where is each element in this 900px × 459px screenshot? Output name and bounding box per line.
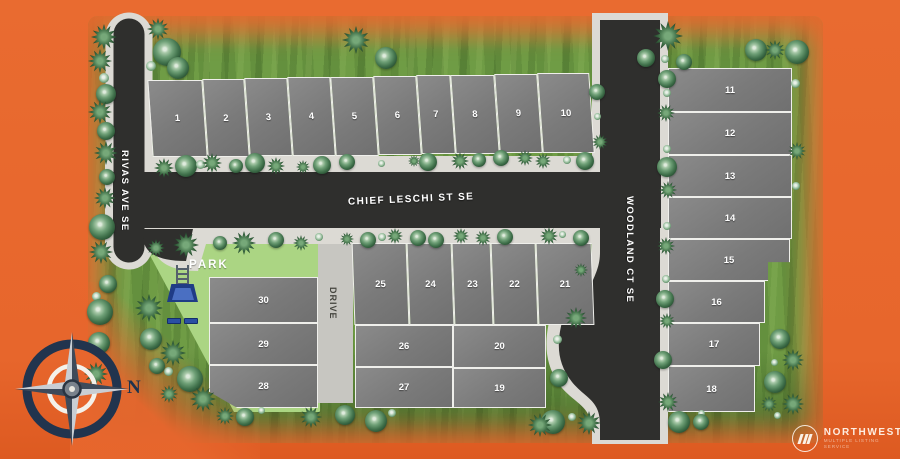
conifer-tree-icon xyxy=(657,104,675,122)
shrub-icon xyxy=(791,79,800,88)
shrub-icon xyxy=(663,222,671,230)
shrub-icon xyxy=(568,413,576,421)
logo-name: NORTHWEST xyxy=(824,427,900,438)
shrub-icon xyxy=(663,89,671,97)
shrub-icon xyxy=(378,160,385,167)
conifer-tree-icon xyxy=(577,411,601,435)
round-tree-icon xyxy=(658,70,676,88)
round-tree-icon xyxy=(676,54,692,70)
conifer-tree-icon xyxy=(658,392,678,412)
round-tree-icon xyxy=(497,229,513,245)
round-tree-icon xyxy=(654,351,672,369)
conifer-tree-icon xyxy=(342,26,370,54)
round-tree-icon xyxy=(656,290,674,308)
shrub-icon xyxy=(378,233,386,241)
nwmls-watermark: NORTHWEST MULTIPLE LISTING SERVICE xyxy=(792,425,900,452)
conifer-tree-icon xyxy=(300,406,322,428)
round-tree-icon xyxy=(472,153,486,167)
conifer-tree-icon xyxy=(592,134,608,150)
conifer-tree-icon xyxy=(91,24,117,50)
conifer-tree-icon xyxy=(154,158,174,178)
conifer-tree-icon xyxy=(147,239,165,257)
round-tree-icon xyxy=(89,214,115,240)
round-tree-icon xyxy=(693,414,709,430)
round-tree-icon xyxy=(96,84,116,104)
conifer-tree-icon xyxy=(232,231,256,255)
shrub-icon xyxy=(196,160,205,169)
compass-north-label: N xyxy=(127,377,141,399)
round-tree-icon xyxy=(229,159,243,173)
shrub-icon xyxy=(792,182,800,190)
round-tree-icon xyxy=(339,154,355,170)
conifer-tree-icon xyxy=(135,294,163,322)
round-tree-icon xyxy=(493,150,509,166)
conifer-tree-icon xyxy=(453,228,469,244)
shrub-icon xyxy=(315,233,323,241)
round-tree-icon xyxy=(589,84,605,100)
site-plan-map: 1234567891011121314151617181920212223242… xyxy=(0,0,900,459)
conifer-tree-icon xyxy=(173,232,199,258)
round-tree-icon xyxy=(175,155,197,177)
conifer-tree-icon xyxy=(451,152,469,170)
round-tree-icon xyxy=(785,40,809,64)
round-tree-icon xyxy=(637,49,655,67)
round-tree-icon xyxy=(375,47,397,69)
round-tree-icon xyxy=(360,232,376,248)
round-tree-icon xyxy=(770,329,790,349)
round-tree-icon xyxy=(268,232,284,248)
round-tree-icon xyxy=(140,328,162,350)
round-tree-icon xyxy=(428,232,444,248)
conifer-tree-icon xyxy=(340,232,354,246)
shrub-icon xyxy=(663,145,671,153)
round-tree-icon xyxy=(764,371,786,393)
conifer-tree-icon xyxy=(387,228,403,244)
shrub-icon xyxy=(662,275,670,283)
conifer-tree-icon xyxy=(782,393,804,415)
round-tree-icon xyxy=(99,275,117,293)
round-tree-icon xyxy=(99,169,115,185)
conifer-tree-icon xyxy=(657,237,675,255)
conifer-tree-icon xyxy=(659,181,677,199)
shrub-icon xyxy=(553,335,562,344)
shrub-icon xyxy=(774,412,781,419)
round-tree-icon xyxy=(245,153,265,173)
conifer-tree-icon xyxy=(540,227,558,245)
round-tree-icon xyxy=(213,236,227,250)
conifer-tree-icon xyxy=(202,153,222,173)
shrub-icon xyxy=(388,409,396,417)
shrub-icon xyxy=(771,359,778,366)
round-tree-icon xyxy=(167,57,189,79)
conifer-tree-icon xyxy=(788,142,806,160)
conifer-tree-icon xyxy=(782,349,804,371)
conifer-tree-icon xyxy=(267,157,285,175)
round-tree-icon xyxy=(177,366,203,392)
conifer-tree-icon xyxy=(574,263,588,277)
shrub-icon xyxy=(99,73,109,83)
conifer-tree-icon xyxy=(94,141,118,165)
compass-rose-icon xyxy=(14,331,130,447)
round-tree-icon xyxy=(149,358,165,374)
conifer-tree-icon xyxy=(94,187,116,209)
conifer-tree-icon xyxy=(88,49,112,73)
round-tree-icon xyxy=(657,157,677,177)
nwmls-logo-icon xyxy=(792,425,818,452)
conifer-tree-icon xyxy=(293,235,309,251)
conifer-tree-icon xyxy=(565,307,587,329)
logo-tagline: MULTIPLE LISTING SERVICE xyxy=(824,438,900,450)
round-tree-icon xyxy=(410,230,426,246)
round-tree-icon xyxy=(335,405,355,425)
shrub-icon xyxy=(594,113,601,120)
conifer-tree-icon xyxy=(659,313,675,329)
conifer-tree-icon xyxy=(517,150,533,166)
conifer-tree-icon xyxy=(765,40,785,60)
shrub-icon xyxy=(563,156,571,164)
shrub-icon xyxy=(146,61,156,71)
conifer-tree-icon xyxy=(160,385,178,403)
conifer-tree-icon xyxy=(475,230,491,246)
shrub-icon xyxy=(258,407,265,414)
shrub-icon xyxy=(164,367,173,376)
round-tree-icon xyxy=(236,408,254,426)
conifer-tree-icon xyxy=(147,18,169,40)
round-tree-icon xyxy=(576,152,594,170)
conifer-tree-icon xyxy=(296,160,310,174)
round-tree-icon xyxy=(87,299,113,325)
round-tree-icon xyxy=(550,369,568,387)
round-tree-icon xyxy=(668,411,690,433)
round-tree-icon xyxy=(419,153,437,171)
round-tree-icon xyxy=(745,39,767,61)
conifer-tree-icon xyxy=(653,21,683,51)
round-tree-icon xyxy=(573,230,589,246)
conifer-tree-icon xyxy=(535,153,551,169)
conifer-tree-icon xyxy=(89,240,113,264)
round-tree-icon xyxy=(97,122,115,140)
round-tree-icon xyxy=(365,410,387,432)
conifer-tree-icon xyxy=(216,407,234,425)
round-tree-icon xyxy=(313,156,331,174)
shrub-icon xyxy=(661,55,669,63)
conifer-tree-icon xyxy=(761,396,777,412)
shrub-icon xyxy=(559,231,566,238)
